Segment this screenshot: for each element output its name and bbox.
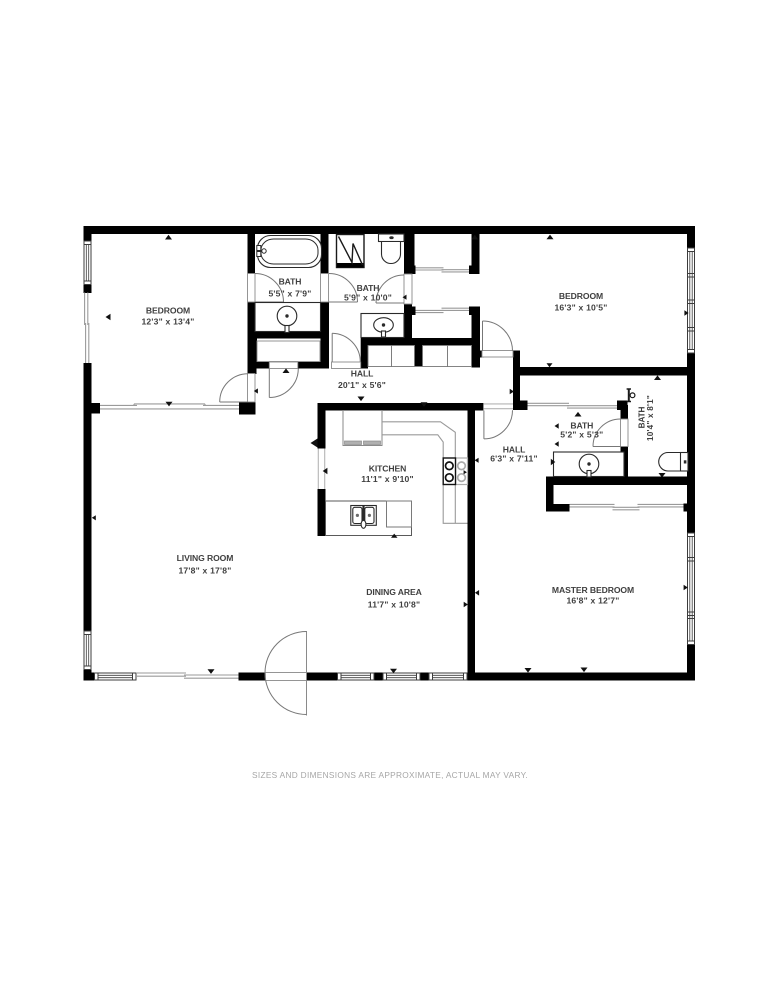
svg-text:KITCHEN: KITCHEN: [369, 464, 407, 474]
svg-text:11'1" x 9'10": 11'1" x 9'10": [361, 474, 414, 484]
svg-text:17'8" x 17'8": 17'8" x 17'8": [178, 566, 231, 576]
svg-text:BEDROOM: BEDROOM: [559, 291, 603, 301]
svg-text:BATH: BATH: [279, 277, 302, 287]
svg-text:11'7" x 10'8": 11'7" x 10'8": [368, 600, 421, 610]
svg-text:SIZES AND DIMENSIONS ARE APPRO: SIZES AND DIMENSIONS ARE APPROXIMATE, AC…: [252, 770, 528, 780]
svg-text:20'1" x 5'6": 20'1" x 5'6": [338, 380, 386, 390]
svg-text:BEDROOM: BEDROOM: [146, 306, 190, 316]
svg-text:16'8" x 12'7": 16'8" x 12'7": [566, 596, 619, 606]
svg-text:10'4" x 8'1": 10'4" x 8'1": [646, 395, 655, 441]
svg-text:BATH: BATH: [357, 283, 380, 293]
svg-text:DINING AREA: DINING AREA: [366, 587, 421, 597]
svg-text:12'3" x 13'4": 12'3" x 13'4": [141, 317, 194, 327]
svg-text:MASTER BEDROOM: MASTER BEDROOM: [552, 585, 634, 595]
svg-text:5'5" x 7'9": 5'5" x 7'9": [268, 289, 311, 299]
svg-text:6'3" x 7'11": 6'3" x 7'11": [490, 454, 538, 464]
svg-text:HALL: HALL: [351, 369, 374, 379]
svg-text:LIVING ROOM: LIVING ROOM: [177, 553, 234, 563]
svg-text:5'2" x 5'3": 5'2" x 5'3": [560, 430, 603, 440]
svg-text:16'3" x 10'5": 16'3" x 10'5": [554, 303, 607, 313]
svg-text:5'9" x 10'0": 5'9" x 10'0": [344, 293, 392, 303]
